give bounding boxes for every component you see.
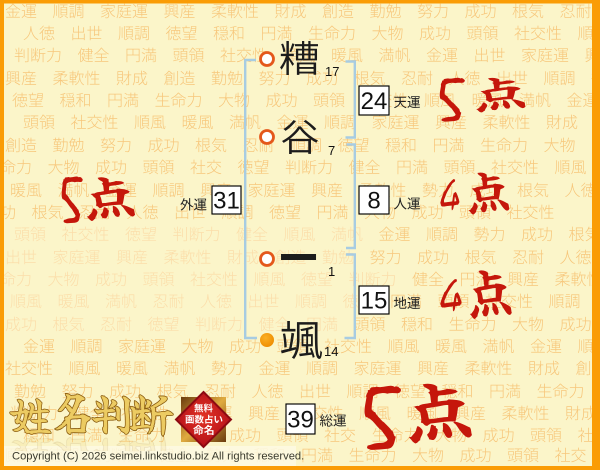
svg-text:7: 7 <box>328 143 335 158</box>
svg-text:39: 39 <box>287 407 314 434</box>
svg-text:8: 8 <box>367 188 380 215</box>
svg-text:17: 17 <box>325 64 339 79</box>
svg-text:31: 31 <box>213 188 240 215</box>
svg-text:14: 14 <box>324 344 338 359</box>
svg-text:15: 15 <box>361 288 388 315</box>
svg-text:Copyright (C) 2026 seimei.link: Copyright (C) 2026 seimei.linkstudio.biz… <box>12 451 304 463</box>
svg-text:1: 1 <box>328 264 335 279</box>
svg-text:24: 24 <box>361 88 388 115</box>
